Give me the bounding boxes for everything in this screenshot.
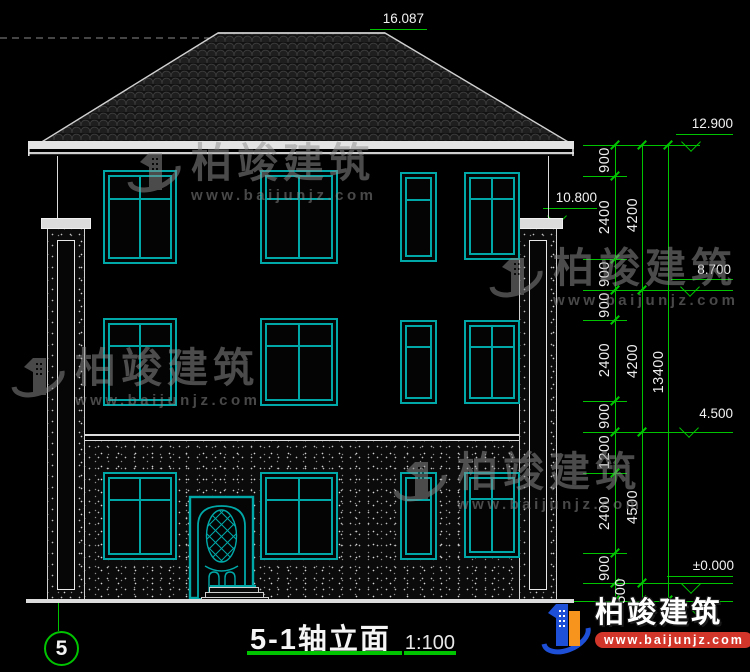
axis-bubble: 5 <box>44 631 79 666</box>
window <box>260 318 338 406</box>
eave-fascia <box>28 141 574 149</box>
footer-brand-url: www.baijunjz.com <box>595 632 750 648</box>
dimension-label: 13400 <box>651 351 667 394</box>
wall-corner-right <box>548 156 549 218</box>
dimension-label: 4200 <box>625 344 641 378</box>
dimension-label: 900 <box>597 292 613 318</box>
dimension-label: 4200 <box>625 198 641 232</box>
window <box>464 172 520 260</box>
axis-label: 5 <box>56 637 68 661</box>
window-narrow <box>400 472 437 560</box>
ground-line <box>26 599 574 603</box>
window <box>103 170 177 264</box>
dimension-label: 900 <box>597 261 613 287</box>
dimension-label: 1200 <box>597 435 613 469</box>
footer-brand-logo-icon <box>541 598 591 662</box>
window-narrow <box>400 172 437 262</box>
footer-brand: 柏竣建筑 www.baijunjz.com <box>541 598 750 662</box>
window <box>103 472 177 560</box>
title-underline-thin <box>404 651 456 655</box>
axis-leader-line <box>58 603 59 631</box>
roof-slope <box>40 33 570 143</box>
dimension-label: 2400 <box>597 343 613 377</box>
window <box>260 170 338 264</box>
window-narrow <box>400 320 437 404</box>
dimension-label: 900 <box>597 555 613 581</box>
window <box>464 472 520 558</box>
dimension-label: 2400 <box>597 200 613 234</box>
slab-band <box>85 434 519 436</box>
hip-roof <box>0 0 750 170</box>
window <box>103 318 177 406</box>
title-underline <box>247 651 402 655</box>
slab-band-lower <box>85 440 519 441</box>
window <box>464 320 520 404</box>
window <box>260 472 338 560</box>
dimension-label: 4500 <box>625 490 641 524</box>
dimension-label: 2400 <box>597 496 613 530</box>
wall-corner-left <box>57 156 58 218</box>
footer-brand-name: 柏竣建筑 <box>595 598 750 630</box>
elevation-drawing: 900 2400 900 900 2400 900 1200 2400 900 … <box>0 0 750 672</box>
dimension-label: 900 <box>597 403 613 429</box>
